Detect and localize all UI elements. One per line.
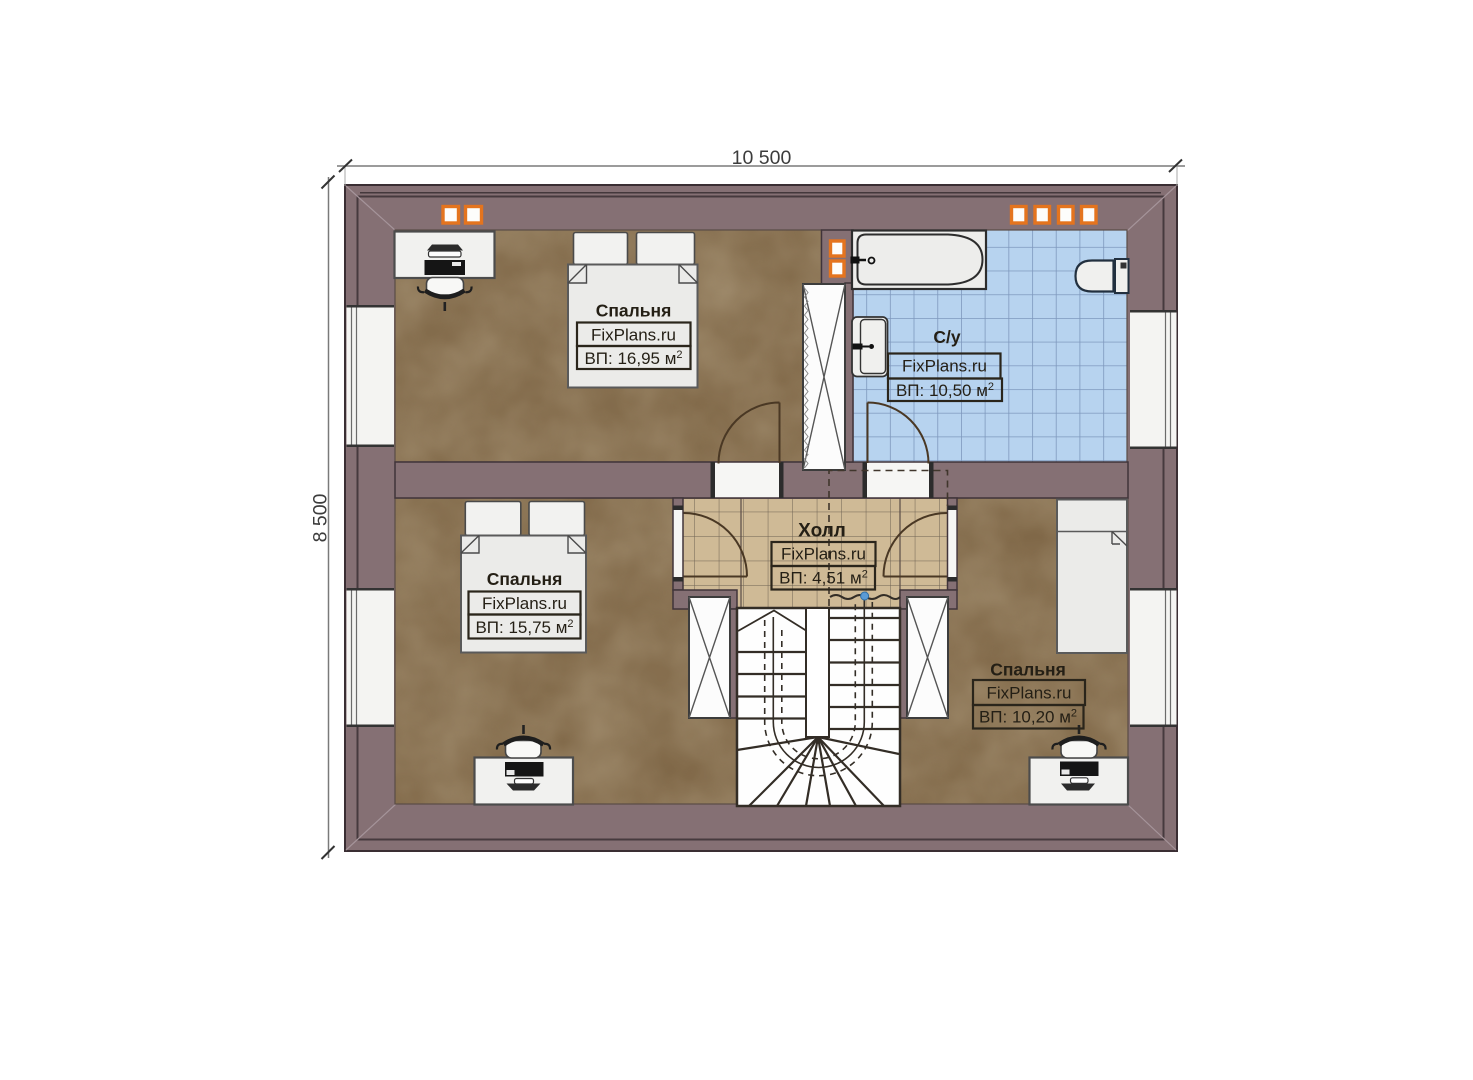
svg-text:ВП: 10,20 м2: ВП: 10,20 м2 [979, 708, 1077, 727]
svg-text:ВП: 10,50 м2: ВП: 10,50 м2 [896, 381, 994, 400]
svg-text:Холл: Холл [798, 521, 846, 542]
svg-text:Спальня: Спальня [596, 301, 672, 321]
svg-text:FixPlans.ru: FixPlans.ru [986, 684, 1071, 703]
svg-text:Спальня: Спальня [990, 660, 1066, 680]
svg-text:10 500: 10 500 [732, 147, 792, 169]
svg-text:С/у: С/у [933, 327, 961, 347]
svg-text:ВП: 4,51 м2: ВП: 4,51 м2 [779, 569, 868, 588]
svg-text:8 500: 8 500 [310, 493, 332, 542]
svg-text:FixPlans.ru: FixPlans.ru [591, 326, 676, 345]
svg-text:ВП: 15,75 м2: ВП: 15,75 м2 [475, 618, 573, 637]
svg-text:Спальня: Спальня [487, 569, 563, 589]
svg-text:FixPlans.ru: FixPlans.ru [482, 594, 567, 613]
svg-text:ВП: 16,95 м2: ВП: 16,95 м2 [584, 349, 682, 368]
svg-text:FixPlans.ru: FixPlans.ru [781, 545, 866, 564]
svg-text:FixPlans.ru: FixPlans.ru [902, 357, 987, 376]
